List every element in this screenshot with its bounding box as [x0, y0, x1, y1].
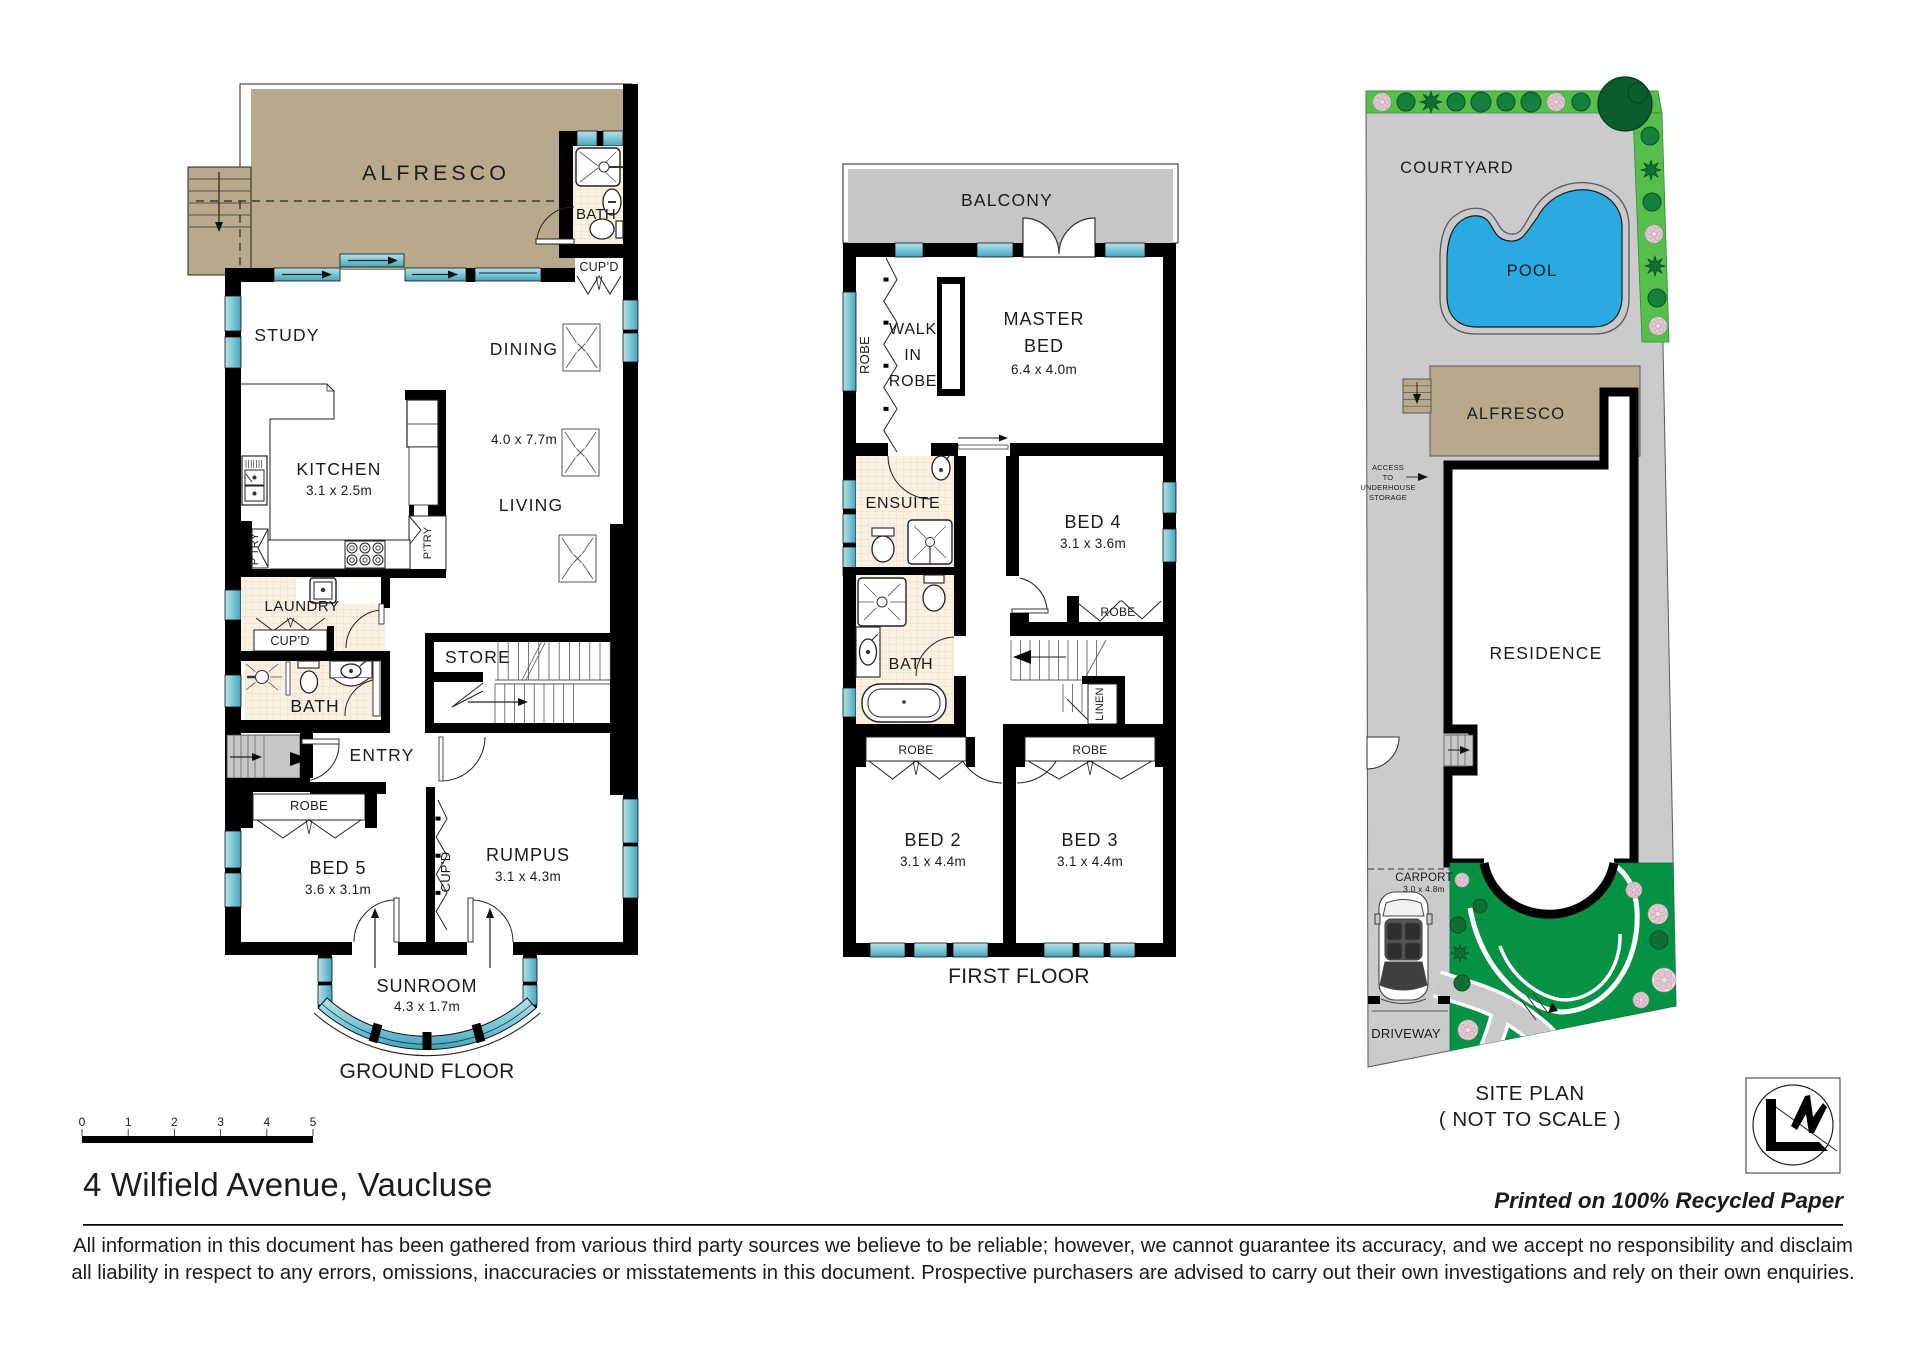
svg-text:WALK: WALK: [889, 321, 937, 338]
svg-text:5: 5: [310, 1115, 317, 1129]
svg-text:GROUND FLOOR: GROUND FLOOR: [339, 1060, 514, 1083]
svg-text:DRIVEWAY: DRIVEWAY: [1371, 1026, 1441, 1041]
svg-text:0: 0: [79, 1115, 86, 1129]
svg-text:SITE PLAN: SITE PLAN: [1475, 1082, 1584, 1105]
svg-text:4.3 x 1.7m: 4.3 x 1.7m: [394, 999, 460, 1014]
svg-text:STORE: STORE: [445, 647, 511, 667]
svg-text:BED 2: BED 2: [904, 830, 961, 850]
svg-text:BED 3: BED 3: [1061, 830, 1118, 850]
svg-text:4.0 x 7.7m: 4.0 x 7.7m: [491, 432, 557, 447]
svg-text:BATH: BATH: [889, 656, 934, 673]
svg-text:3.1 x 4.4m: 3.1 x 4.4m: [900, 854, 966, 869]
svg-text:ROBE: ROBE: [290, 798, 328, 813]
svg-text:all liability in respect to an: all liability in respect to any errors, …: [71, 1262, 1854, 1284]
svg-text:All information in this docume: All information in this document has bee…: [73, 1235, 1853, 1257]
svg-text:BALCONY: BALCONY: [961, 190, 1053, 210]
svg-text:LAUNDRY: LAUNDRY: [265, 598, 340, 615]
svg-text:ALFRESCO: ALFRESCO: [1467, 405, 1566, 423]
svg-text:P’TRY: P’TRY: [249, 532, 261, 565]
svg-text:ROBE: ROBE: [1072, 743, 1107, 757]
svg-text:LIVING: LIVING: [499, 495, 564, 515]
svg-text:DINING: DINING: [490, 339, 558, 359]
svg-text:4: 4: [263, 1115, 270, 1129]
svg-text:3: 3: [217, 1115, 224, 1129]
svg-text:BATH: BATH: [576, 206, 616, 223]
svg-text:4 Wilfield Avenue, Vaucluse: 4 Wilfield Avenue, Vaucluse: [83, 1166, 493, 1203]
svg-text:STUDY: STUDY: [254, 325, 319, 345]
svg-text:P’TRY: P’TRY: [422, 526, 434, 559]
svg-text:ROBE: ROBE: [889, 373, 938, 390]
svg-text:RESIDENCE: RESIDENCE: [1490, 643, 1603, 663]
svg-text:Printed on 100% Recycled Paper: Printed on 100% Recycled Paper: [1494, 1188, 1844, 1213]
svg-text:FIRST FLOOR: FIRST FLOOR: [948, 965, 1090, 988]
svg-text:LINEN: LINEN: [1094, 687, 1106, 720]
svg-text:COURTYARD: COURTYARD: [1400, 159, 1514, 177]
svg-text:( NOT TO SCALE ): ( NOT TO SCALE ): [1439, 1108, 1621, 1131]
svg-text:CUP’D: CUP’D: [579, 260, 618, 274]
svg-text:CUP’D: CUP’D: [270, 634, 309, 648]
svg-text:UNDERHOUSE: UNDERHOUSE: [1360, 483, 1415, 492]
svg-text:3.1 x 3.6m: 3.1 x 3.6m: [1060, 536, 1126, 551]
svg-text:ROBE: ROBE: [898, 743, 933, 757]
svg-text:ROBE: ROBE: [1100, 605, 1135, 619]
svg-text:SUNROOM: SUNROOM: [377, 976, 478, 996]
svg-text:CARPORT: CARPORT: [1395, 872, 1452, 884]
svg-text:1: 1: [125, 1115, 132, 1129]
svg-text:6.4 x 4.0m: 6.4 x 4.0m: [1011, 362, 1077, 377]
svg-text:3.1 x 2.5m: 3.1 x 2.5m: [306, 483, 372, 498]
svg-text:BED: BED: [1024, 336, 1064, 356]
svg-text:ACCESS: ACCESS: [1372, 463, 1404, 472]
svg-text:POOL: POOL: [1507, 262, 1558, 280]
svg-text:BED 5: BED 5: [309, 858, 366, 878]
svg-text:TO: TO: [1383, 473, 1394, 482]
svg-text:ROBE: ROBE: [857, 336, 872, 374]
svg-text:3.1 x 4.4m: 3.1 x 4.4m: [1057, 854, 1123, 869]
svg-text:KITCHEN: KITCHEN: [296, 459, 381, 479]
svg-text:CUP’D: CUP’D: [438, 852, 453, 893]
svg-text:2: 2: [171, 1115, 178, 1129]
svg-text:ENTRY: ENTRY: [350, 745, 415, 765]
svg-text:BED 4: BED 4: [1064, 512, 1121, 532]
svg-text:BATH: BATH: [290, 696, 339, 716]
svg-text:MASTER: MASTER: [1003, 309, 1084, 329]
svg-text:RUMPUS: RUMPUS: [486, 845, 570, 865]
svg-text:3.6 x 3.1m: 3.6 x 3.1m: [305, 882, 371, 897]
svg-text:STORAGE: STORAGE: [1369, 493, 1407, 502]
svg-text:ENSUITE: ENSUITE: [866, 495, 941, 512]
svg-text:3.1 x 4.3m: 3.1 x 4.3m: [495, 869, 561, 884]
svg-text:ALFRESCO: ALFRESCO: [362, 161, 510, 185]
svg-text:IN: IN: [904, 347, 922, 364]
